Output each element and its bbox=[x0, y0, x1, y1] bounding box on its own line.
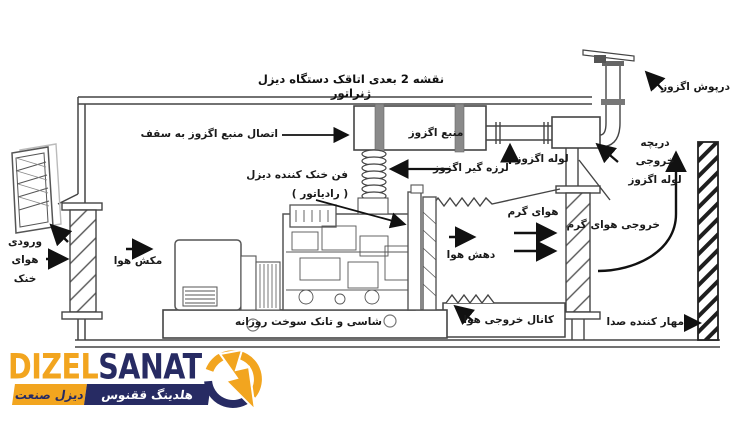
label-exhaust-pipe-outlet-hatch: دریچه خروجی لوله اگزوز bbox=[624, 134, 686, 189]
inlet-louver bbox=[12, 144, 61, 233]
radiator-flexible-duct bbox=[432, 189, 560, 206]
label-chassis-daily-fuel-tank: شاسی و تانک سوخت روزانه bbox=[256, 316, 382, 330]
label-exhaust-pipe: لوله اگزوز bbox=[515, 153, 569, 167]
label-exhaust-cap: درپوش اگزوز bbox=[666, 81, 730, 95]
label-air-discharge: دهش هوا bbox=[446, 249, 496, 263]
logo-banner-holding: هلدینگ ققنوس bbox=[84, 384, 211, 405]
arrow-louver bbox=[52, 226, 68, 242]
label-warm-air-outlet: خروجی هوای گرم bbox=[582, 219, 660, 233]
sound-suppressor-wall bbox=[698, 142, 718, 340]
arrow-outlet-hatch bbox=[598, 145, 618, 162]
diagram-title: نقشه 2 بعدی اتاقک دستگاه دیزل ژنراتور bbox=[236, 72, 466, 100]
logo-wordmark-dizel: DIZEL bbox=[8, 346, 98, 387]
coupling bbox=[241, 256, 280, 310]
label-air-outlet-duct: کانال خروجی هوا bbox=[472, 314, 554, 328]
alternator bbox=[175, 240, 241, 310]
radiator bbox=[408, 185, 436, 310]
label-warm-air: هوای گرم bbox=[504, 206, 562, 220]
diagram: نقشه 2 بعدی اتاقک دستگاه دیزل ژنراتور من… bbox=[0, 0, 733, 421]
air-inlet-attenuator bbox=[62, 203, 102, 319]
label-sound-suppressor: مهار کننده صدا bbox=[610, 316, 684, 330]
label-cool-air-inlet: ورودی هوای خنک bbox=[2, 233, 48, 288]
label-exhaust-source-ceiling-connection: اتصال منبع اگزوز به سقف bbox=[150, 128, 278, 142]
label-exhaust-source: منبع اگزوز bbox=[396, 127, 476, 141]
label-exhaust-vibration-isolator: لرزه گیر اگزوز bbox=[428, 162, 514, 176]
exhaust-piping bbox=[486, 50, 634, 200]
label-diesel-cooling-fan-sub: ( رادیاتور ) bbox=[286, 188, 354, 202]
logo-banner: دیزل صنعت هلدینگ ققنوس bbox=[12, 384, 211, 405]
logo-banner-diesel-sanat: دیزل صنعت bbox=[12, 384, 87, 405]
label-air-suction: مکش هوا bbox=[112, 255, 164, 269]
diesel-engine bbox=[283, 198, 415, 310]
logo-wordmark-sanat: SANAT bbox=[98, 346, 201, 387]
label-diesel-cooling-fan: فن خنک کننده دیزل bbox=[250, 169, 348, 183]
logo-lightning-icon bbox=[198, 346, 268, 418]
